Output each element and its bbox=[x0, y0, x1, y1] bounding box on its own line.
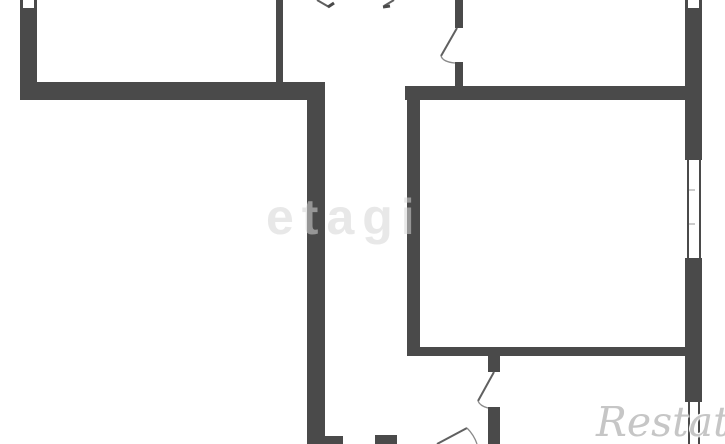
window-right-mid-tick-1 bbox=[689, 189, 695, 191]
window-bottom-right-frame-left bbox=[688, 402, 690, 444]
wall-right-room-left bbox=[407, 100, 420, 347]
wall-top-left bbox=[20, 82, 325, 100]
wall-central bbox=[307, 98, 325, 444]
door-arc-lower-room bbox=[478, 401, 488, 408]
window-right-mid-frame-left bbox=[687, 160, 689, 258]
door-arc-bottom bbox=[467, 428, 477, 444]
top-edge-door-mark-right-tip bbox=[383, 6, 390, 7]
wall-right-room-bottom bbox=[407, 347, 690, 356]
door-arc-top-right-room bbox=[441, 56, 455, 63]
wall-right-outer-upper bbox=[685, 8, 702, 160]
wall-top-divider bbox=[276, 0, 283, 84]
top-edge-door-mark-left-line bbox=[317, 0, 329, 7]
top-edge-door-mark-left bbox=[317, 0, 334, 7]
floor-plan-drawing bbox=[0, 0, 725, 444]
wall-entry-upper-stub bbox=[455, 0, 463, 28]
top-edge-door-mark-right bbox=[383, 0, 394, 7]
wall-bottom-stub-left bbox=[325, 436, 343, 444]
window-top-right-frame-left bbox=[685, 0, 688, 8]
window-bottom-right-frame-right bbox=[698, 402, 700, 444]
window-top-right-frame-right bbox=[699, 0, 702, 8]
floor-plan-image: etagi Restate bbox=[0, 0, 725, 444]
door-leaf-top-right-room bbox=[441, 28, 457, 56]
window-top-left-frame-left bbox=[20, 0, 23, 9]
top-edge-door-mark-left-tip bbox=[328, 3, 334, 7]
wall-lower-door-lower-stub bbox=[488, 407, 500, 444]
wall-right-outer-lower bbox=[685, 258, 702, 402]
window-right-mid-frame-right bbox=[699, 160, 701, 258]
door-leaf-lower-room bbox=[478, 372, 494, 401]
door-leaf-bottom bbox=[437, 428, 467, 444]
wall-lower-door-upper-stub bbox=[488, 356, 500, 372]
wall-top-right bbox=[405, 86, 702, 100]
window-right-mid-tick-2 bbox=[689, 223, 695, 225]
wall-bottom-stub-mid bbox=[375, 435, 397, 444]
wall-entry-lower-stub bbox=[455, 62, 463, 88]
window-top-left-frame-right bbox=[34, 0, 37, 9]
